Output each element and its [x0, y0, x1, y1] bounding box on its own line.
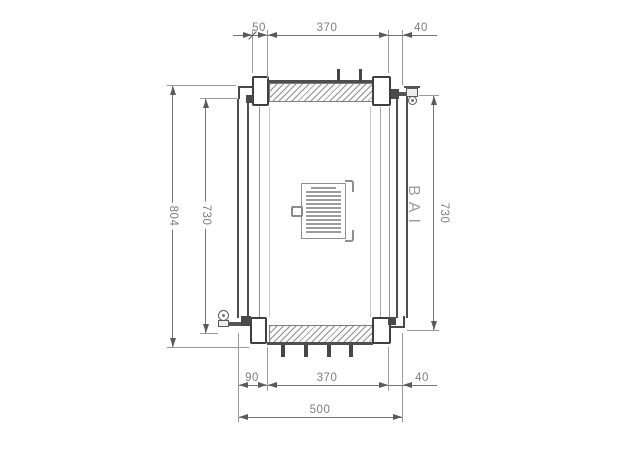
grille-clip-bottom: [345, 230, 354, 242]
bottom-connection-stub: [327, 345, 331, 357]
projection-line: [370, 107, 371, 317]
arrowhead: [203, 324, 209, 333]
bottom-connection-stub: [281, 345, 285, 357]
projection-line: [259, 107, 260, 317]
arrowhead: [393, 414, 402, 420]
dimension-line-right: [433, 95, 434, 330]
extension-line: [402, 30, 403, 85]
dim-label-left-730: 730: [200, 202, 212, 229]
extension-line: [167, 85, 236, 86]
extension-line: [388, 30, 389, 73]
bottom-right-elbow-joint: [388, 317, 396, 325]
grille-clip-top: [345, 180, 354, 192]
brand-watermark: BAI: [405, 185, 421, 229]
dim-label-bottom-500: 500: [310, 404, 331, 416]
corner-block-top-left: [252, 76, 269, 106]
dim-label-bottom-370: 370: [317, 372, 338, 384]
arrowhead: [403, 382, 412, 388]
extension-line: [407, 330, 439, 331]
dim-label-left-804: 804: [167, 203, 179, 230]
arrowhead: [170, 338, 176, 347]
dim-label-right-730: 730: [438, 200, 450, 227]
extension-line: [388, 347, 389, 391]
extension-line: [167, 347, 249, 348]
top-left-elbow-joint: [246, 95, 253, 103]
projection-line: [389, 107, 390, 317]
arrowhead: [403, 32, 412, 38]
bottom-left-elbow-joint: [241, 316, 251, 326]
projection-line: [380, 107, 381, 317]
bleed-valve-dot: [411, 99, 414, 102]
arrowhead: [268, 382, 277, 388]
bottom-connection-stub: [349, 345, 353, 357]
dim-label-top-50: 50: [252, 22, 266, 34]
arrowhead: [268, 32, 277, 38]
arrowhead: [170, 86, 176, 95]
arrowhead: [239, 414, 248, 420]
arrowhead: [203, 99, 209, 108]
drain-valve-body: [218, 320, 229, 327]
extension-line: [200, 333, 218, 334]
bottom-connection-stub: [304, 345, 308, 357]
top-right-elbow-joint: [391, 89, 399, 99]
arrowhead: [258, 382, 267, 388]
top-connection-stub: [359, 69, 362, 82]
corner-block-top-right: [372, 76, 391, 106]
dim-label-bottom-40: 40: [415, 372, 429, 384]
grille-side-tab: [291, 206, 303, 217]
left-rail: [237, 99, 249, 318]
top-connection-stub: [337, 69, 340, 82]
dim-label-top-370: 370: [317, 22, 338, 34]
corner-block-bottom-left: [250, 317, 267, 344]
heating-grille: [301, 183, 346, 239]
dim-label-top-40: 40: [414, 22, 428, 34]
arrowhead: [379, 382, 388, 388]
projection-line: [269, 107, 270, 317]
top-bar-hatched: [269, 83, 373, 102]
arrowhead: [379, 32, 388, 38]
drain-valve-dot: [222, 314, 225, 317]
arrowhead: [431, 321, 437, 330]
drawing-canvas: 50 370 40 90 370 40 500 804 730 730 BAI: [0, 0, 624, 460]
dimension-line-bottom-row2: [238, 417, 403, 418]
arrowhead: [431, 96, 437, 105]
dim-label-bottom-90: 90: [245, 372, 259, 384]
extension-line: [402, 333, 403, 422]
